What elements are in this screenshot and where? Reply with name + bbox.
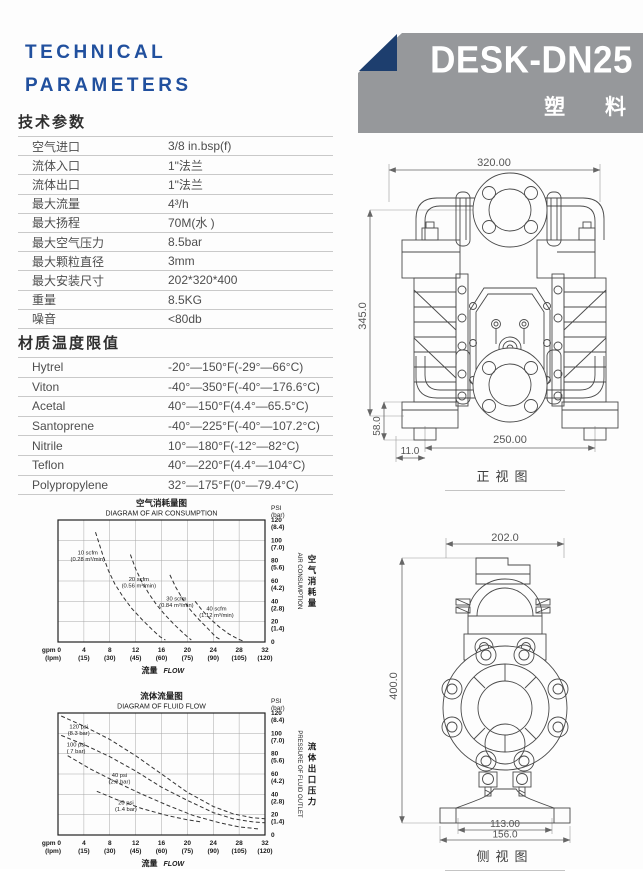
table-row: Polypropylene32°—175°F(0°—79.4°C)	[18, 476, 333, 496]
y-tick-label: 60	[271, 771, 279, 778]
front-base-height-dim: 58.0	[372, 416, 383, 436]
table-row: 流体入口1"法兰	[18, 156, 333, 175]
chart-title-en: DIAGRAM OF FLUID FLOW	[117, 704, 206, 711]
x-tick-label: 24	[210, 840, 218, 847]
right-axis-label-cn: 流	[308, 742, 317, 752]
x-tick-label: 32	[261, 647, 269, 654]
x-tick-label: 28	[236, 647, 244, 654]
right-axis-label-en: AIR CONSUMPTION	[296, 553, 302, 610]
y-tick-label: 20	[271, 619, 279, 626]
front-height-dim: 345.0	[357, 302, 369, 330]
y-tick-label: (7.0)	[271, 737, 284, 744]
row-value: 1"法兰	[168, 176, 333, 193]
row-label: Santoprene	[18, 419, 168, 433]
x-tick-label: 8	[108, 840, 112, 847]
row-value: -40°—225°F(-40°—107.2°C)	[168, 419, 333, 433]
front-width-dim: 320.00	[477, 157, 511, 169]
series-label: (1.4 bar)	[115, 807, 137, 813]
y-tick-label: 0	[271, 639, 275, 646]
x-tick-label: (45)	[130, 848, 142, 855]
y-tick-label: 40	[271, 791, 279, 798]
row-value: 202*320*400	[168, 273, 333, 287]
row-value: -20°—150°F(-29°—66°C)	[168, 360, 333, 374]
material-limits-heading: 材质温度限值	[18, 332, 120, 353]
row-value: 1"法兰	[168, 157, 333, 174]
x-tick-label: (lpm)	[45, 655, 61, 662]
x-tick-label: (120)	[257, 848, 272, 855]
row-value: 40°—220°F(4.4°—104°C)	[168, 458, 333, 472]
series-label: (0.56 m³/min)	[122, 584, 157, 590]
side-height-dim: 400.0	[388, 672, 400, 700]
y-tick-label: (5.6)	[271, 565, 284, 572]
x-tick-label: (45)	[130, 655, 142, 662]
material-type: 塑 料	[544, 91, 643, 121]
right-axis-label-cn: 耗	[308, 587, 317, 597]
chart-title-cn: 空气消耗量图	[136, 498, 187, 508]
y-tick-label: (8.4)	[271, 717, 284, 724]
fluid-flow-chart: 流体流量图DIAGRAM OF FLUID FLOWPSI(bar)120(8.…	[10, 689, 355, 894]
right-axis-label-en: PRESSURE OF FLUID OUTLET	[296, 730, 302, 818]
series-label: 100 psi	[67, 743, 86, 749]
tech-params-heading: 技术参数	[18, 111, 86, 132]
series-label: 20 psi	[118, 801, 133, 807]
right-axis-label-cn: 力	[308, 797, 317, 807]
spec-sheet-page: TECHNICAL PARAMETERS DESK-DN25 塑 料 技术参数 …	[0, 0, 643, 869]
x-tick-label: (105)	[232, 655, 247, 662]
y-tick-label: 60	[271, 578, 279, 585]
x-tick-label: 28	[236, 840, 244, 847]
x-tick-label: (120)	[257, 655, 272, 662]
x-tick-label: 16	[158, 647, 166, 654]
x-tick-label: gpm 0	[42, 840, 62, 847]
right-axis-label-cn: 口	[308, 775, 317, 785]
table-row: 噪音<80db	[18, 310, 333, 329]
y-tick-label: (8.4)	[271, 524, 284, 531]
table-row: 最大扬程70M(水 )	[18, 214, 333, 233]
series-label: (8.3 bar)	[68, 731, 90, 737]
x-tick-label: 12	[132, 647, 140, 654]
row-value: 40°—150°F(4.4°—65.5°C)	[168, 399, 333, 413]
row-label: Viton	[18, 380, 168, 394]
y-tick-label: (2.8)	[271, 605, 284, 612]
row-label: Hytrel	[18, 360, 168, 374]
x-tick-label: (90)	[207, 655, 219, 662]
front-bolt-span-dim: 250.00	[493, 434, 527, 446]
tech-params-table: 空气进口3/8 in.bsp(f)流体入口1"法兰流体出口1"法兰最大流量4³/…	[18, 136, 333, 329]
x-tick-label: 20	[184, 647, 192, 654]
side-port-span-dim: 113.00	[490, 819, 520, 830]
y-tick-label: (5.6)	[271, 758, 284, 765]
x-axis-label-en: FLOW	[164, 861, 186, 868]
y-tick-label: (4.2)	[271, 778, 284, 785]
x-tick-label: 20	[184, 840, 192, 847]
table-row: 重量8.5KG	[18, 291, 333, 310]
side-base-width-dim: 156.0	[492, 830, 517, 841]
row-value: -40°—350°F(-40°—176.6°C)	[168, 380, 333, 394]
table-row: 流体出口1"法兰	[18, 175, 333, 194]
table-row: 最大空气压力8.5bar	[18, 233, 333, 252]
chart-title-cn: 流体流量图	[140, 691, 183, 701]
row-label: 最大空气压力	[18, 234, 168, 251]
page-title-line1: TECHNICAL	[25, 36, 192, 69]
y-tick-label: 80	[271, 751, 279, 758]
table-row: Teflon40°—220°F(4.4°—104°C)	[18, 456, 333, 476]
banner-corner-triangle-icon	[359, 34, 397, 71]
series-label: (0.28 m³/min)	[71, 557, 106, 563]
right-axis-label-cn: 空	[308, 554, 317, 564]
row-value: 10°—180°F(-12°—82°C)	[168, 439, 333, 453]
x-tick-label: gpm 0	[42, 647, 62, 654]
series-label: (0.84 m³/min)	[159, 603, 194, 609]
pump-side-art	[440, 558, 570, 823]
row-label: 流体入口	[18, 157, 168, 174]
row-value: 3mm	[168, 254, 333, 268]
y-tick-label: 40	[271, 598, 279, 605]
pump-front-art	[402, 173, 618, 440]
pump-side-view-drawing: 202.0 400.0 113.00 156.0	[378, 496, 628, 844]
right-axis-label-cn: 量	[308, 598, 317, 608]
x-tick-label: 32	[261, 840, 269, 847]
row-label: Acetal	[18, 399, 168, 413]
material-limits-table: Hytrel-20°—150°F(-29°—66°C)Viton-40°—350…	[18, 357, 333, 495]
x-tick-label: 24	[210, 647, 218, 654]
table-row: Nitrile10°—180°F(-12°—82°C)	[18, 436, 333, 456]
row-label: Teflon	[18, 458, 168, 472]
table-row: Acetal40°—150°F(4.4°—65.5°C)	[18, 397, 333, 417]
row-value: <80db	[168, 312, 333, 326]
y-axis-unit: PSI	[271, 698, 282, 705]
series-label: 30 scfm	[166, 596, 186, 602]
x-tick-label: (60)	[156, 655, 168, 662]
y-tick-label: 100	[271, 730, 282, 737]
row-label: 重量	[18, 291, 168, 308]
side-view-caption: 侧视图	[445, 846, 565, 871]
x-tick-label: (lpm)	[45, 848, 61, 855]
table-row: 最大颗粒直径3mm	[18, 252, 333, 271]
row-value: 32°—175°F(0°—79.4°C)	[168, 478, 333, 492]
series-label: 10 scfm	[78, 551, 98, 557]
row-label: 噪音	[18, 310, 168, 327]
row-label: Polypropylene	[18, 478, 168, 492]
y-tick-label: 80	[271, 558, 279, 565]
table-row: 空气进口3/8 in.bsp(f)	[18, 137, 333, 156]
x-tick-label: 8	[108, 647, 112, 654]
x-tick-label: (90)	[207, 848, 219, 855]
row-label: 最大流量	[18, 195, 168, 212]
series-label: 40 scfm	[206, 606, 226, 612]
right-axis-label-cn: 消	[308, 576, 317, 586]
y-tick-label: 100	[271, 537, 282, 544]
x-tick-label: (75)	[182, 655, 194, 662]
y-tick-label: (7.0)	[271, 544, 284, 551]
x-tick-label: (60)	[156, 848, 168, 855]
y-tick-label: 20	[271, 812, 279, 819]
table-row: 最大安装尺寸202*320*400	[18, 271, 333, 290]
x-tick-label: (15)	[78, 655, 90, 662]
y-tick-label: 120	[271, 710, 282, 717]
row-label: 最大安装尺寸	[18, 272, 168, 289]
series-label: 20 scfm	[129, 577, 149, 583]
x-tick-label: 4	[82, 840, 86, 847]
right-axis-label-cn: 气	[307, 565, 317, 575]
side-width-dim: 202.0	[491, 532, 519, 544]
x-axis-label-en: FLOW	[164, 668, 186, 675]
y-tick-label: (1.4)	[271, 819, 284, 826]
front-foot-offset-dim: 11.0	[401, 446, 420, 457]
table-row: Hytrel-20°—150°F(-29°—66°C)	[18, 358, 333, 378]
air-consumption-chart: 空气消耗量图DIAGRAM OF AIR CONSUMPTIONPSI(bar)…	[10, 496, 355, 701]
x-tick-label: (30)	[104, 655, 116, 662]
series-label: (2.8 bar)	[108, 780, 130, 786]
x-tick-label: (75)	[182, 848, 194, 855]
front-view-caption: 正视图	[445, 466, 565, 491]
table-row: Viton-40°—350°F(-40°—176.6°C)	[18, 378, 333, 398]
x-tick-label: 12	[132, 840, 140, 847]
row-label: 流体出口	[18, 176, 168, 193]
y-tick-label: 120	[271, 517, 282, 524]
row-label: 最大颗粒直径	[18, 253, 168, 270]
x-axis-label-cn: 流量	[142, 858, 158, 868]
table-row: 最大流量4³/h	[18, 195, 333, 214]
model-name: DESK-DN25	[430, 39, 633, 82]
row-label: 空气进口	[18, 138, 168, 155]
y-tick-label: (1.4)	[271, 626, 284, 633]
y-tick-label: 0	[271, 832, 275, 839]
right-axis-label-cn: 体	[308, 753, 317, 763]
series-curve	[68, 756, 259, 829]
x-axis-label-cn: 流量	[142, 665, 158, 675]
row-label: Nitrile	[18, 439, 168, 453]
row-value: 8.5KG	[168, 293, 333, 307]
right-axis-label-cn: 压	[308, 786, 317, 796]
series-label: 40 psi	[112, 773, 127, 779]
y-tick-label: (2.8)	[271, 798, 284, 805]
row-value: 8.5bar	[168, 235, 333, 249]
y-tick-label: (4.2)	[271, 585, 284, 592]
x-tick-label: (105)	[232, 848, 247, 855]
series-label: 120 psi	[69, 724, 88, 730]
series-curve	[97, 791, 201, 822]
page-title: TECHNICAL PARAMETERS	[25, 36, 192, 103]
series-label: ( 7 bar)	[67, 749, 86, 755]
chart-title-en: DIAGRAM OF AIR CONSUMPTION	[105, 511, 217, 518]
right-axis-label-cn: 出	[308, 764, 317, 774]
x-tick-label: (30)	[104, 848, 116, 855]
x-tick-label: 4	[82, 647, 86, 654]
model-banner: DESK-DN25 塑 料	[358, 33, 643, 133]
row-value: 70M(水 )	[168, 214, 333, 231]
x-tick-label: (15)	[78, 848, 90, 855]
series-curve	[61, 735, 265, 822]
x-tick-label: 16	[158, 840, 166, 847]
row-label: 最大扬程	[18, 214, 168, 231]
table-row: Santoprene-40°—225°F(-40°—107.2°C)	[18, 417, 333, 437]
page-title-line2: PARAMETERS	[25, 69, 192, 102]
row-value: 3/8 in.bsp(f)	[168, 139, 333, 153]
row-value: 4³/h	[168, 197, 333, 211]
series-label: (1.12 m³/min)	[199, 613, 234, 619]
y-axis-unit: PSI	[271, 505, 282, 512]
pump-front-view-drawing: 320.00 345.0 250.00 58.0 11.0	[356, 140, 641, 470]
